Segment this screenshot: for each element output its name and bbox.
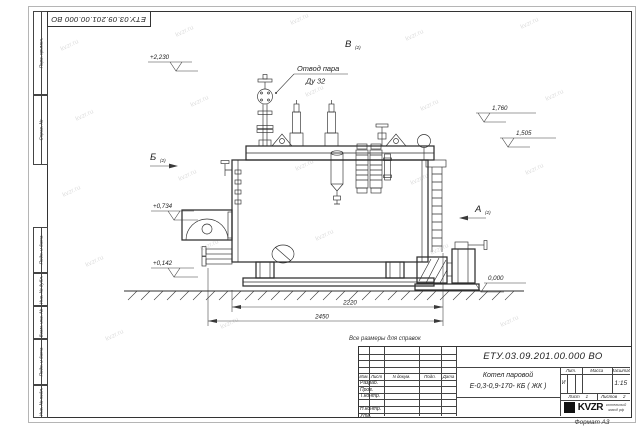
safety-valves xyxy=(290,100,338,146)
dimension-lines: 2220 2450 xyxy=(208,253,443,326)
company-subtext: котельный завод рф xyxy=(606,403,626,413)
gauge-columns xyxy=(356,144,392,193)
col-list: Лист xyxy=(369,373,384,380)
col-data: Дата xyxy=(441,373,456,380)
view-marker-b: Б (2) xyxy=(150,152,178,168)
company-subtext-line2: завод рф xyxy=(606,408,626,413)
view-v-subscript: (2) xyxy=(355,45,361,50)
scale-header: Масштаб xyxy=(612,367,631,374)
lit-value: И xyxy=(560,374,567,394)
steam-outlet-callout: Отвод пара Ду 32 xyxy=(275,64,348,94)
elevation-0142: +0,142 xyxy=(153,260,173,267)
callout-line1: Отвод пара xyxy=(297,64,339,73)
view-a-label: А xyxy=(474,204,481,215)
manhole xyxy=(272,245,294,263)
row-utv: Утв. xyxy=(360,413,384,419)
drawing-sheet: kvzr.ru kvzr.ru kvzr.ru kvzr.ru kvzr.ru … xyxy=(0,0,644,430)
titleblock-doc-number: ЕТУ.03.09.201.00.000 ВО xyxy=(456,347,630,367)
feed-pump xyxy=(415,241,487,291)
elevation-0734: +0,734 xyxy=(153,203,173,210)
steam-outlet-valve xyxy=(257,75,273,147)
mass-header: Масса xyxy=(582,367,612,374)
lit-header: Лит. xyxy=(560,367,582,374)
ground-line xyxy=(124,291,524,300)
burner xyxy=(182,161,232,267)
elevation-top: +2,230 xyxy=(150,54,170,61)
sheet-label: Лист xyxy=(568,394,579,399)
row-tkontr: Т.контр. xyxy=(360,393,384,399)
view-marker-v: В (2) xyxy=(345,39,361,50)
view-b-label: Б xyxy=(150,152,156,163)
view-a-subscript: (2) xyxy=(485,210,491,215)
product-name: Котел паровой Е-0,3-0,9-170- КБ ( ЖК ) xyxy=(456,367,560,397)
col-izm: Изм. xyxy=(359,373,369,380)
dim-overall-length: 2450 xyxy=(314,314,329,321)
supports-and-skid xyxy=(243,262,434,286)
sheets-value: 2 xyxy=(623,394,625,399)
row-prov: Пров. xyxy=(360,387,384,393)
col-doc: N докум. xyxy=(384,373,419,380)
company-logo-icon xyxy=(564,402,575,413)
top-fittings xyxy=(376,124,431,160)
row-razrab: Разраб. xyxy=(360,380,384,386)
boiler-body xyxy=(232,146,434,263)
view-marker-a: А (2) xyxy=(459,204,491,220)
elevation-marks: +2,230 1,760 1,505 +0,734 +0,142 0,000 xyxy=(148,54,556,292)
col-podp: Подп. xyxy=(419,373,441,380)
right-side-piping xyxy=(426,160,446,252)
scale-value: 1:15 xyxy=(612,374,631,394)
sheets-label: Листов xyxy=(601,394,617,399)
reference-dimensions-note: Все размеры для справок xyxy=(349,336,421,342)
title-block: ЕТУ.03.09.201.00.000 ВО Изм. Лист N доку… xyxy=(358,346,632,418)
dim-body-length: 2220 xyxy=(342,300,357,307)
view-b-subscript: (2) xyxy=(160,158,166,163)
product-name-line2: Е-0,3-0,9-170- КБ ( ЖК ) xyxy=(470,382,547,393)
row-nkontr: Н.контр. xyxy=(360,406,384,412)
product-name-line1: Котел паровой xyxy=(483,371,533,382)
view-v-label: В xyxy=(345,39,352,50)
water-level-gauge xyxy=(331,151,343,204)
sheet-value: 1 xyxy=(586,394,588,399)
callout-line2: Ду 32 xyxy=(305,77,325,86)
elevation-1760: 1,760 xyxy=(492,105,508,112)
format-label: Формат А3 xyxy=(552,419,632,426)
elevation-1505: 1,505 xyxy=(516,130,532,137)
company-cell: KVZR котельный завод рф xyxy=(560,400,630,417)
elevation-zero: 0,000 xyxy=(488,275,504,282)
company-logo-text: KVZR xyxy=(578,402,603,413)
